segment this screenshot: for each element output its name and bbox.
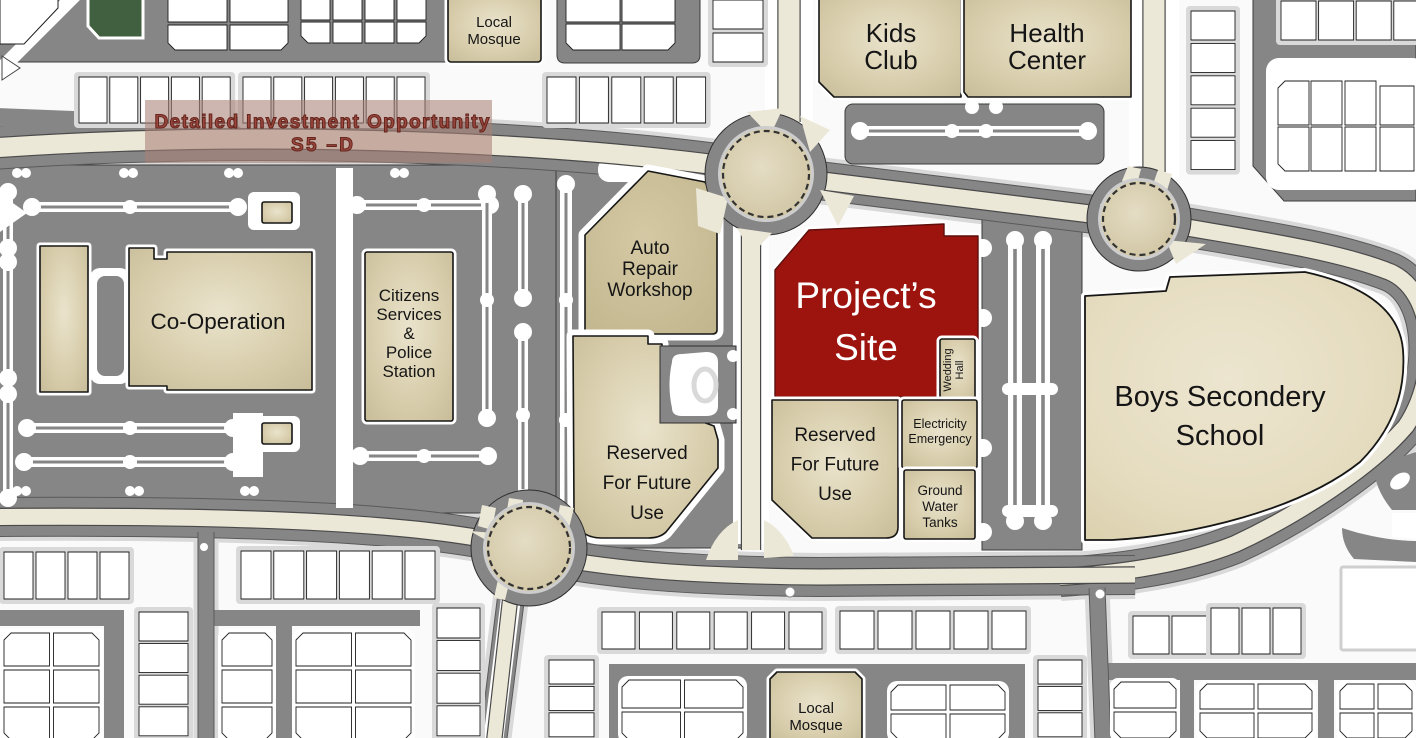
svg-text:Use: Use — [818, 484, 852, 505]
svg-text:Auto: Auto — [630, 238, 669, 259]
svg-text:Services: Services — [376, 305, 441, 324]
svg-text:Co-Operation: Co-Operation — [150, 309, 285, 334]
svg-text:Project’s: Project’s — [795, 275, 936, 316]
svg-text:Local: Local — [798, 700, 834, 717]
svg-text:Health: Health — [1009, 18, 1084, 48]
svg-text:Boys Secondery: Boys Secondery — [1114, 381, 1326, 413]
svg-text:Water: Water — [922, 499, 958, 514]
svg-text:Emergency: Emergency — [908, 432, 972, 446]
svg-text:&: & — [403, 324, 415, 343]
svg-text:Site: Site — [834, 327, 898, 368]
svg-text:Center: Center — [1008, 45, 1086, 75]
svg-text:Police: Police — [386, 343, 432, 362]
svg-text:School: School — [1176, 420, 1265, 452]
svg-text:Detailed Investment Opportunit: Detailed Investment Opportunity — [155, 112, 490, 133]
svg-text:Tanks: Tanks — [922, 515, 958, 530]
svg-text:Use: Use — [630, 503, 664, 524]
svg-text:Reserved: Reserved — [794, 425, 875, 446]
svg-text:Electricity: Electricity — [913, 417, 967, 431]
svg-text:Mosque: Mosque — [467, 31, 520, 48]
svg-text:Station: Station — [383, 362, 436, 381]
svg-text:For Future: For Future — [603, 473, 692, 494]
svg-text:Wedding: Wedding — [942, 348, 954, 391]
svg-text:Mosque: Mosque — [789, 717, 842, 734]
svg-text:Hall: Hall — [954, 361, 966, 380]
svg-text:Reserved: Reserved — [606, 443, 687, 464]
svg-text:Club: Club — [864, 45, 917, 75]
svg-text:Repair: Repair — [622, 259, 679, 280]
svg-text:Kids: Kids — [866, 18, 917, 48]
svg-text:Ground: Ground — [917, 483, 962, 498]
svg-text:S5 –D: S5 –D — [291, 135, 353, 156]
svg-text:Citizens: Citizens — [379, 286, 439, 305]
svg-text:For Future: For Future — [791, 455, 880, 476]
svg-text:Local: Local — [476, 14, 512, 31]
svg-text:Workshop: Workshop — [607, 280, 692, 301]
